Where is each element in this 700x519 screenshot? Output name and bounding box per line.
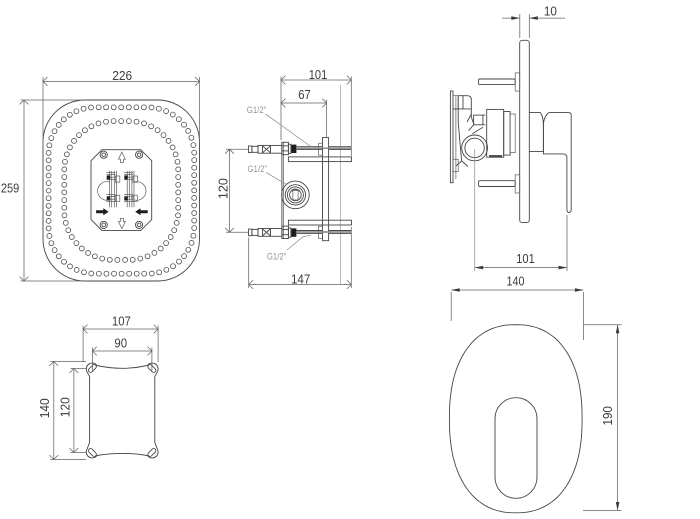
svg-text:G1/2”: G1/2” (247, 164, 267, 175)
svg-text:G1/2”: G1/2” (247, 105, 267, 116)
svg-text:107: 107 (112, 313, 131, 328)
svg-text:140: 140 (507, 273, 525, 288)
svg-text:67: 67 (298, 87, 311, 102)
svg-text:147: 147 (291, 272, 311, 287)
svg-text:120: 120 (57, 397, 72, 417)
svg-text:G1/2”: G1/2” (267, 252, 287, 263)
svg-text:226: 226 (112, 68, 132, 83)
svg-text:10: 10 (544, 4, 557, 19)
svg-text:140: 140 (37, 398, 52, 418)
svg-text:101: 101 (309, 67, 328, 82)
svg-text:259: 259 (1, 180, 20, 195)
svg-text:120: 120 (215, 178, 230, 199)
svg-text:101: 101 (516, 251, 535, 266)
svg-text:190: 190 (600, 406, 615, 426)
svg-text:90: 90 (114, 336, 127, 351)
